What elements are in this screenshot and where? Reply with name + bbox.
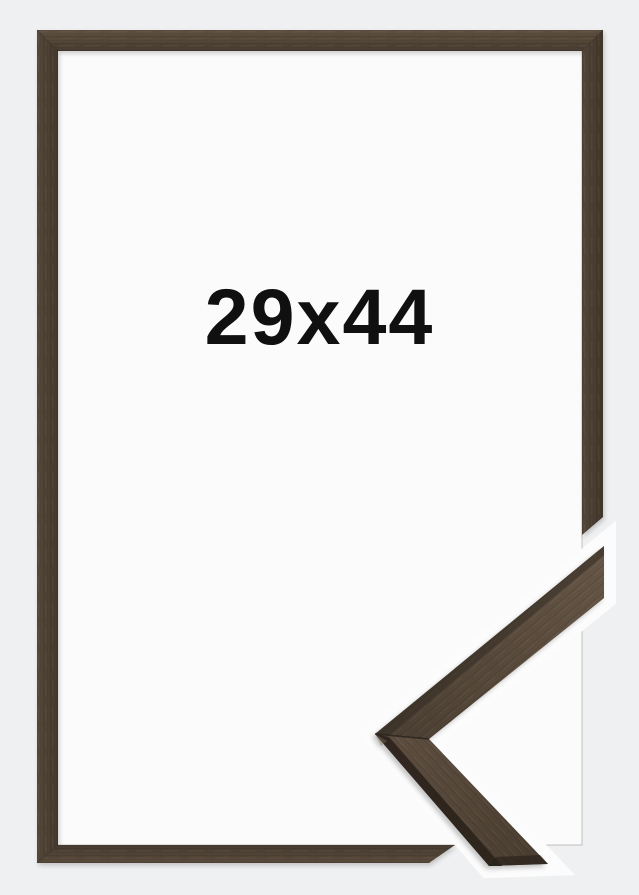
frame-border-top <box>37 30 603 51</box>
frame-preview-graphic <box>0 0 639 895</box>
frame-border-bottom <box>37 845 455 863</box>
product-image: 29x44 <box>0 0 639 895</box>
frame-border-left <box>37 30 58 863</box>
size-label: 29x44 <box>0 277 639 356</box>
frame-interior <box>57 50 582 845</box>
